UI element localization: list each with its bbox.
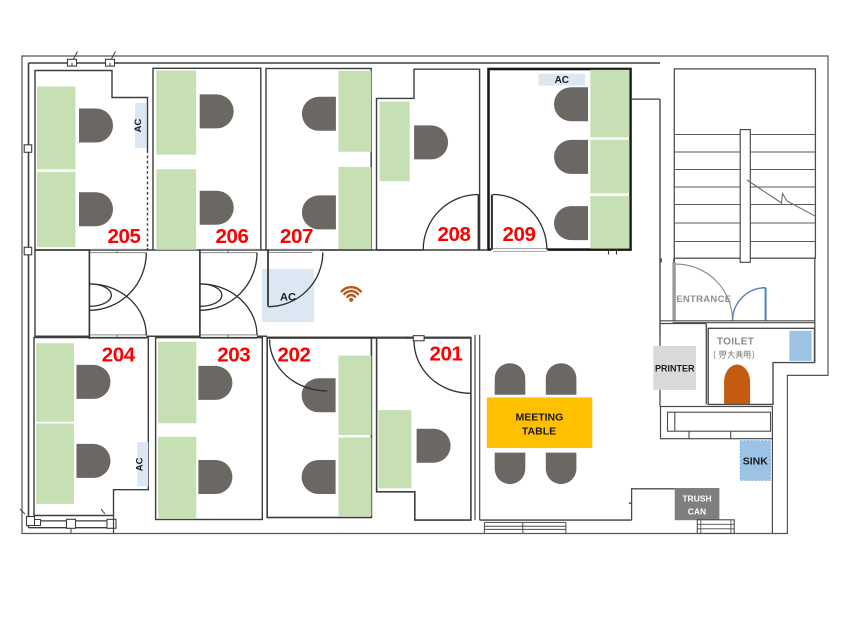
svg-text:AC: AC bbox=[280, 292, 296, 304]
svg-text:204: 204 bbox=[102, 344, 136, 367]
svg-text:201: 201 bbox=[429, 343, 462, 366]
svg-text:208: 208 bbox=[437, 223, 470, 246]
svg-text:PRINTER: PRINTER bbox=[655, 364, 695, 374]
svg-text:TRUSH: TRUSH bbox=[682, 494, 711, 504]
svg-text:203: 203 bbox=[217, 344, 250, 367]
svg-text:TABLE: TABLE bbox=[522, 426, 556, 438]
svg-text:CAN: CAN bbox=[688, 507, 706, 517]
svg-text:AC: AC bbox=[135, 457, 146, 471]
svg-text:AC: AC bbox=[133, 119, 144, 133]
svg-text:205: 205 bbox=[107, 225, 140, 248]
svg-text:ENTRANCE: ENTRANCE bbox=[676, 294, 731, 305]
svg-text:AC: AC bbox=[555, 75, 569, 86]
svg-text:209: 209 bbox=[502, 223, 535, 246]
svg-text:SINK: SINK bbox=[743, 456, 769, 468]
svg-text:TOILET: TOILET bbox=[717, 337, 754, 348]
svg-text:202: 202 bbox=[277, 344, 310, 367]
svg-text:206: 206 bbox=[215, 225, 248, 248]
svg-text:MEETING: MEETING bbox=[515, 412, 563, 424]
svg-text:207: 207 bbox=[280, 225, 313, 248]
